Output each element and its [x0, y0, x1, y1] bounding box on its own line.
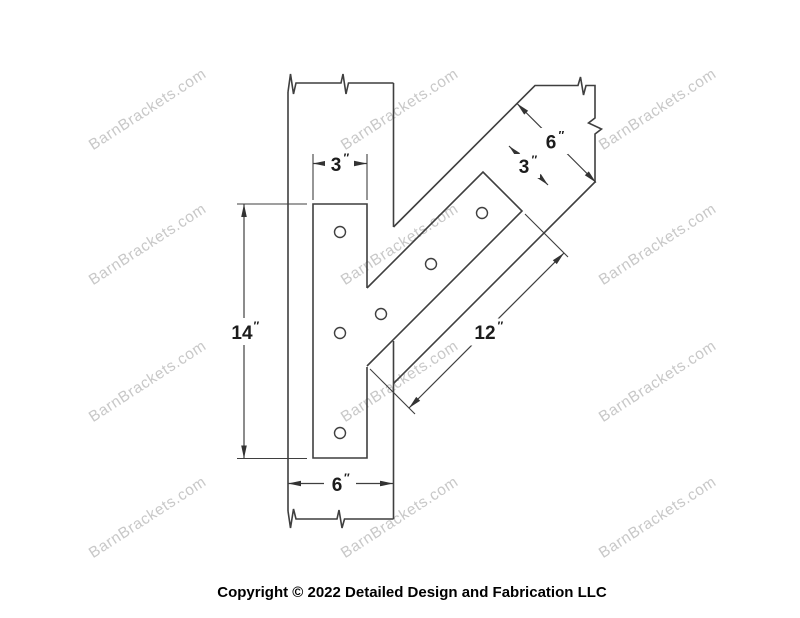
drawing-page: { "watermark": { "text": "BarnBrackets.c…	[0, 0, 800, 618]
inch-mark: ″	[254, 319, 260, 333]
t-plate-outline	[313, 204, 367, 458]
post-top-break-line	[288, 74, 394, 94]
dim-plate-width-3in: 3 ″	[313, 151, 367, 200]
inch-mark: ″	[344, 151, 350, 165]
bolt-hole	[376, 309, 387, 320]
dimension-value: 3	[519, 157, 530, 178]
dim-plate-height-14in: 14 ″	[226, 204, 307, 459]
inch-mark: ″	[559, 129, 565, 143]
bolt-hole	[335, 428, 346, 439]
extension-line	[370, 369, 415, 414]
dim-post-width-6in: 6 ″	[288, 471, 393, 496]
post-bottom-break-line	[288, 509, 394, 528]
copyright-text: Copyright © 2022 Detailed Design and Fab…	[217, 584, 606, 601]
inch-mark: ″	[498, 319, 504, 333]
inch-mark: ″	[344, 471, 350, 485]
dimension-value: 6	[546, 133, 557, 154]
extension-line	[525, 214, 568, 257]
dimension-value: 6	[332, 475, 343, 496]
dimension-value: 12	[474, 323, 495, 344]
bracket-technical-drawing: 3 ″ 14 ″ 6 ″ 6 ″ 3 ″ 12 ″	[0, 0, 800, 618]
dim-strap-length-12in: 12 ″	[370, 214, 568, 414]
post-outline	[288, 74, 394, 528]
dimension-value: 14	[231, 323, 253, 344]
inch-mark: ″	[532, 153, 538, 167]
bolt-hole	[426, 259, 437, 270]
bolt-hole	[477, 208, 488, 219]
dimension-value: 3	[331, 155, 342, 176]
bolt-hole	[335, 328, 346, 339]
bolt-hole	[335, 227, 346, 238]
